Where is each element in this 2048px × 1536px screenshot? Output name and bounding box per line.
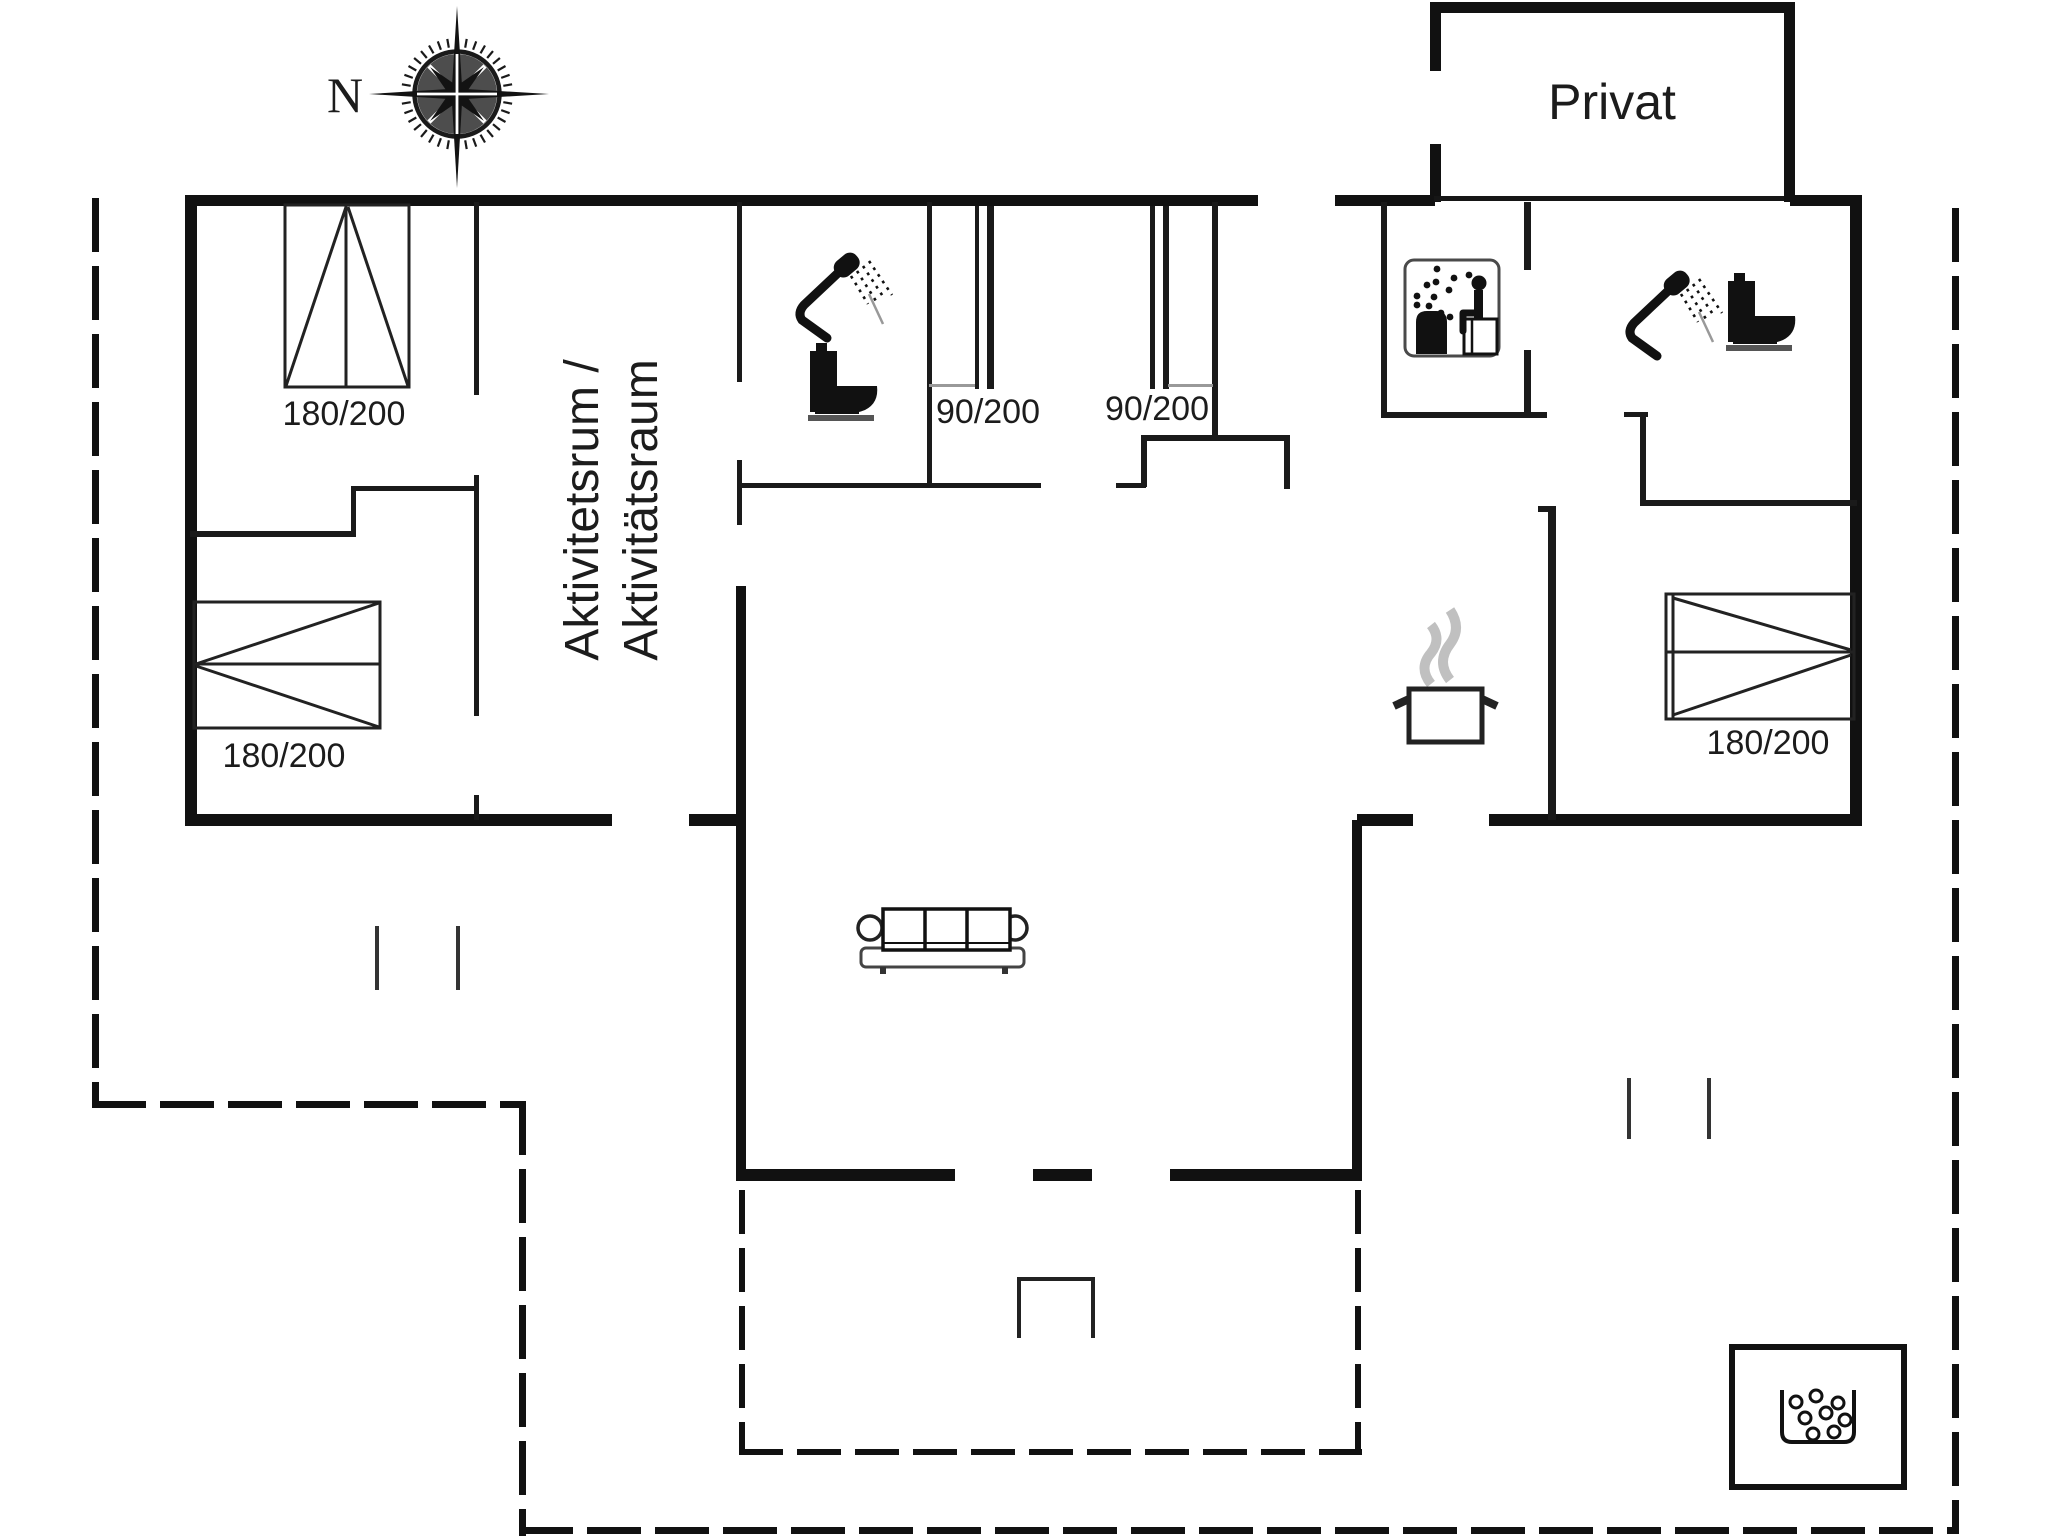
svg-text:180/200: 180/200 (1707, 724, 1830, 762)
svg-text:Aktivitetsrum /: Aktivitetsrum / (556, 359, 609, 661)
svg-text:180/200: 180/200 (223, 737, 346, 775)
svg-text:Aktivitätsraum: Aktivitätsraum (615, 359, 668, 660)
svg-text:180/200: 180/200 (283, 395, 406, 433)
svg-text:90/200: 90/200 (936, 393, 1040, 431)
svg-text:Privat: Privat (1548, 74, 1676, 130)
svg-text:90/200: 90/200 (1105, 390, 1209, 428)
svg-text:N: N (327, 67, 363, 123)
